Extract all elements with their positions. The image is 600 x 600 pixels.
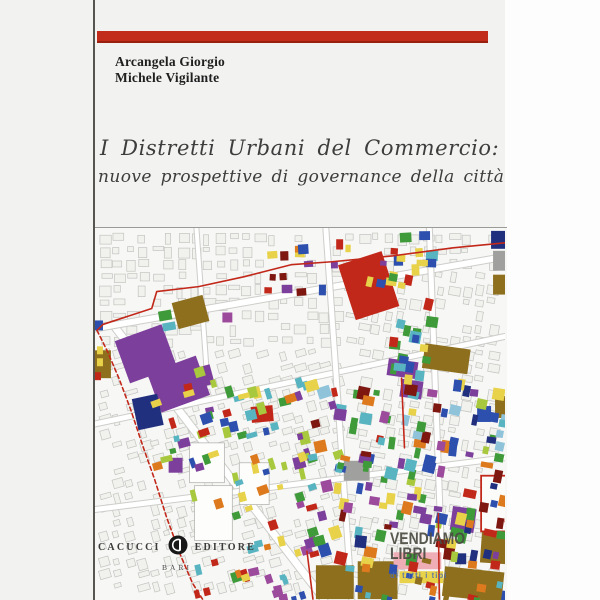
- author-name: Michele Vigilante: [115, 70, 225, 86]
- photo-left-margin: [0, 0, 93, 600]
- book-cover: Arcangela Giorgio Michele Vigilante I Di…: [93, 0, 505, 600]
- publisher-row: CACUCCI EDITORE: [107, 535, 247, 560]
- publisher-name-right: EDITORE: [195, 542, 256, 553]
- watermark-line2: LIBRI: [390, 546, 497, 561]
- seller-watermark: VENDIAMO LIBRI di tutti i tipi: [390, 531, 520, 580]
- watermark-tagline: di tutti i tipi: [390, 570, 507, 580]
- accent-bar: [97, 31, 488, 43]
- publisher-city: BARI: [107, 563, 247, 572]
- title-block: I Distretti Urbani del Commercio: nuove …: [100, 136, 504, 187]
- publisher-block: CACUCCI EDITORE BARI: [107, 535, 247, 572]
- publisher-name-left: CACUCCI: [98, 542, 161, 553]
- cacucci-logo-icon: [168, 535, 188, 560]
- book-cover-photo: Arcangela Giorgio Michele Vigilante I Di…: [0, 0, 600, 600]
- book-title-line2: nuove prospettive di governance della ci…: [98, 167, 504, 187]
- book-title-line1: I Distretti Urbani del Commercio:: [100, 136, 504, 160]
- author-name: Arcangela Giorgio: [115, 54, 225, 70]
- authors-block: Arcangela Giorgio Michele Vigilante: [115, 54, 225, 86]
